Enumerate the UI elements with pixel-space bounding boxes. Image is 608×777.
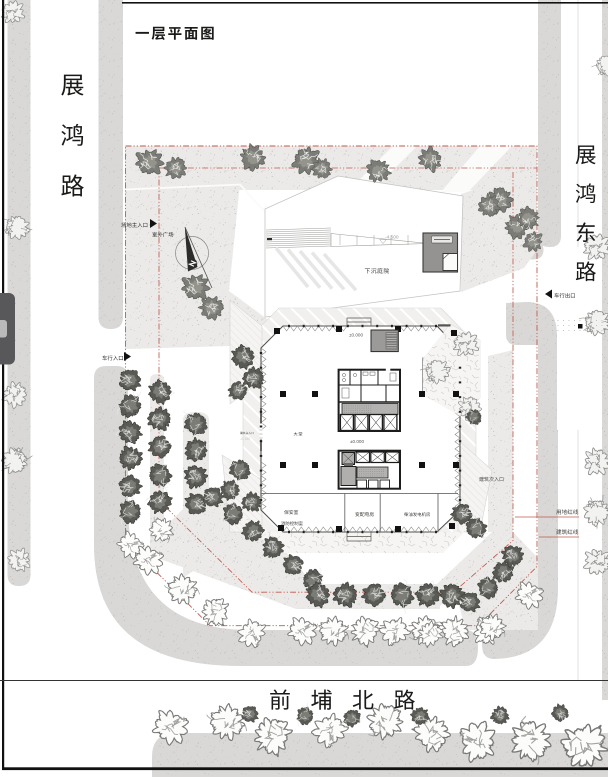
svg-text:±0.000: ±0.000: [350, 439, 364, 444]
svg-text:±0.000: ±0.000: [349, 333, 363, 338]
svg-text:-4.500: -4.500: [385, 235, 399, 241]
svg-text:-0.150: -0.150: [240, 437, 250, 441]
